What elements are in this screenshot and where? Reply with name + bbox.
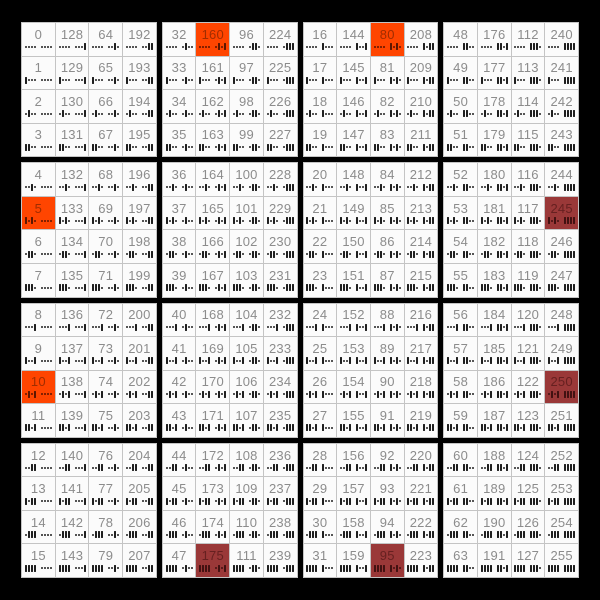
- bit-zero-mark: [172, 146, 174, 148]
- cell-value: 50: [453, 95, 468, 108]
- binary-marks: [233, 357, 260, 365]
- bit-zero-mark: [191, 287, 193, 289]
- bit-zero-mark: [111, 113, 113, 115]
- binary-marks: [199, 497, 226, 505]
- bit-zero-mark: [78, 146, 80, 148]
- bit-one-mark: [101, 424, 103, 431]
- bit-zero-mark: [50, 567, 52, 569]
- binary-marks: [514, 531, 541, 539]
- cell-value: 97: [239, 61, 254, 74]
- bit-zero-mark: [145, 186, 147, 188]
- cell-value: 98: [239, 95, 254, 108]
- grid-cell-62: 62: [444, 511, 477, 544]
- bit-zero-mark: [325, 500, 327, 502]
- bit-zero-mark: [407, 253, 409, 255]
- bit-one-mark: [34, 565, 36, 572]
- bit-zero-mark: [68, 186, 70, 188]
- bit-one-mark: [416, 357, 418, 364]
- bit-one-mark: [432, 531, 434, 538]
- bit-zero-mark: [413, 360, 415, 362]
- bit-one-mark: [239, 565, 241, 572]
- bit-zero-mark: [383, 113, 385, 115]
- binary-marks: [548, 284, 575, 292]
- bit-zero-mark: [399, 220, 401, 222]
- bit-zero-mark: [169, 360, 171, 362]
- bit-zero-mark: [393, 326, 395, 328]
- cell-value: 86: [380, 235, 395, 248]
- bit-one-mark: [520, 184, 522, 191]
- bit-one-mark: [463, 531, 465, 538]
- bit-zero-mark: [481, 467, 483, 469]
- bit-one-mark: [429, 144, 431, 151]
- bit-one-mark: [500, 324, 502, 331]
- bit-zero-mark: [331, 393, 333, 395]
- bit-one-mark: [514, 357, 516, 364]
- bit-zero-mark: [98, 146, 100, 148]
- bit-zero-mark: [205, 427, 207, 429]
- grid-cell-172: 172: [196, 444, 229, 477]
- bit-one-mark: [292, 284, 294, 291]
- grid-cell-131: 131: [56, 124, 89, 157]
- bit-zero-mark: [270, 360, 272, 362]
- binary-marks: [447, 564, 474, 572]
- bit-zero-mark: [28, 467, 30, 469]
- bit-one-mark: [286, 217, 288, 224]
- binary-marks: [59, 183, 86, 191]
- grid-cell-133: 133: [56, 197, 89, 230]
- bit-zero-mark: [215, 567, 217, 569]
- bit-one-mark: [573, 391, 575, 398]
- bit-one-mark: [429, 217, 431, 224]
- bit-one-mark: [466, 531, 468, 538]
- bit-zero-mark: [551, 79, 553, 81]
- bit-one-mark: [497, 531, 499, 538]
- bit-zero-mark: [142, 467, 144, 469]
- bit-one-mark: [396, 144, 398, 151]
- bit-one-mark: [500, 184, 502, 191]
- bit-zero-mark: [98, 393, 100, 395]
- bit-zero-mark: [487, 146, 489, 148]
- bit-zero-mark: [188, 534, 190, 536]
- bit-one-mark: [255, 43, 257, 50]
- bit-one-mark: [567, 324, 569, 331]
- bit-zero-mark: [374, 467, 376, 469]
- bit-one-mark: [536, 144, 538, 151]
- bit-zero-mark: [380, 427, 382, 429]
- bit-one-mark: [322, 43, 324, 50]
- bit-one-mark: [564, 531, 566, 538]
- bit-one-mark: [114, 498, 116, 505]
- bit-one-mark: [292, 565, 294, 572]
- bit-zero-mark: [215, 186, 217, 188]
- grid-cell-36: 36: [163, 163, 196, 196]
- bit-one-mark: [255, 184, 257, 191]
- bit-zero-mark: [472, 393, 474, 395]
- grid-cell-119: 119: [512, 264, 545, 297]
- binary-marks: [166, 464, 193, 472]
- bit-zero-mark: [188, 467, 190, 469]
- bit-one-mark: [289, 251, 291, 258]
- bit-zero-mark: [81, 360, 83, 362]
- bit-one-mark: [322, 391, 324, 398]
- bit-one-mark: [453, 251, 455, 258]
- cell-value: 106: [235, 375, 257, 388]
- bit-zero-mark: [199, 534, 201, 536]
- bit-one-mark: [396, 324, 398, 331]
- binary-marks: [25, 464, 52, 472]
- bit-one-mark: [239, 217, 241, 224]
- bit-one-mark: [224, 464, 226, 471]
- binary-marks: [407, 323, 434, 331]
- bit-zero-mark: [208, 287, 210, 289]
- grid-cell-129: 129: [56, 57, 89, 90]
- bit-one-mark: [548, 424, 550, 431]
- bit-zero-mark: [416, 79, 418, 81]
- bit-one-mark: [292, 251, 294, 258]
- bit-zero-mark: [34, 113, 36, 115]
- bit-one-mark: [236, 391, 238, 398]
- binary-marks: [126, 143, 153, 151]
- bit-one-mark: [148, 110, 150, 117]
- bit-one-mark: [497, 391, 499, 398]
- bit-zero-mark: [182, 326, 184, 328]
- bit-zero-mark: [410, 360, 412, 362]
- bit-zero-mark: [377, 326, 379, 328]
- bit-one-mark: [286, 184, 288, 191]
- bit-zero-mark: [273, 326, 275, 328]
- bit-one-mark: [346, 464, 348, 471]
- bit-zero-mark: [426, 567, 428, 569]
- bit-zero-mark: [374, 393, 376, 395]
- bit-zero-mark: [249, 146, 251, 148]
- bit-zero-mark: [108, 186, 110, 188]
- bit-zero-mark: [362, 326, 364, 328]
- bit-zero-mark: [182, 567, 184, 569]
- bit-one-mark: [453, 498, 455, 505]
- grid-block: 60 188 124 252 61 189 125 253 62 190 126…: [443, 443, 579, 578]
- grid-cell-118: 118: [512, 230, 545, 263]
- bit-one-mark: [536, 284, 538, 291]
- bit-one-mark: [233, 424, 235, 431]
- bit-one-mark: [343, 251, 345, 258]
- bit-one-mark: [59, 144, 61, 151]
- bit-one-mark: [340, 284, 342, 291]
- bit-one-mark: [416, 498, 418, 505]
- binary-marks: [306, 564, 333, 572]
- bit-zero-mark: [117, 360, 119, 362]
- bit-zero-mark: [267, 113, 269, 115]
- bit-one-mark: [456, 391, 458, 398]
- bit-zero-mark: [273, 427, 275, 429]
- bit-zero-mark: [393, 360, 395, 362]
- binary-marks: [199, 183, 226, 191]
- bit-zero-mark: [25, 534, 27, 536]
- bit-zero-mark: [117, 567, 119, 569]
- bit-one-mark: [343, 284, 345, 291]
- bit-zero-mark: [447, 186, 449, 188]
- bit-zero-mark: [426, 534, 428, 536]
- bit-one-mark: [396, 284, 398, 291]
- bit-zero-mark: [221, 287, 223, 289]
- grid-cell-46: 46: [163, 511, 196, 544]
- bit-zero-mark: [481, 393, 483, 395]
- bit-one-mark: [390, 391, 392, 398]
- cell-value: 88: [380, 308, 395, 321]
- cell-value: 142: [61, 516, 83, 529]
- bit-one-mark: [429, 77, 431, 84]
- bit-one-mark: [390, 498, 392, 505]
- bit-zero-mark: [191, 146, 193, 148]
- bit-one-mark: [413, 565, 415, 572]
- cell-value: 117: [517, 202, 538, 215]
- bit-zero-mark: [517, 500, 519, 502]
- bit-one-mark: [252, 184, 254, 191]
- cell-value: 157: [342, 482, 364, 495]
- bit-zero-mark: [98, 79, 100, 81]
- bit-zero-mark: [59, 113, 61, 115]
- bit-one-mark: [554, 464, 556, 471]
- bit-zero-mark: [169, 220, 171, 222]
- bit-zero-mark: [426, 46, 428, 48]
- bit-zero-mark: [31, 79, 33, 81]
- bit-zero-mark: [182, 467, 184, 469]
- cell-value: 77: [98, 482, 113, 495]
- bit-one-mark: [252, 391, 254, 398]
- bit-zero-mark: [456, 186, 458, 188]
- bit-one-mark: [390, 284, 392, 291]
- bit-zero-mark: [469, 253, 471, 255]
- grid-cell-217: 217: [405, 337, 438, 370]
- bit-zero-mark: [399, 500, 401, 502]
- bit-one-mark: [340, 498, 342, 505]
- bit-zero-mark: [208, 220, 210, 222]
- bit-zero-mark: [215, 467, 217, 469]
- bit-one-mark: [95, 531, 97, 538]
- cell-value: 206: [128, 516, 150, 529]
- bit-one-mark: [490, 357, 492, 364]
- bit-one-mark: [322, 357, 324, 364]
- bit-one-mark: [25, 357, 27, 364]
- bit-one-mark: [564, 43, 566, 50]
- bit-one-mark: [172, 531, 174, 538]
- bit-zero-mark: [81, 467, 83, 469]
- bit-one-mark: [315, 531, 317, 538]
- bit-one-mark: [98, 565, 100, 572]
- bit-one-mark: [423, 324, 425, 331]
- bit-one-mark: [218, 284, 220, 291]
- binary-marks: [267, 531, 294, 539]
- bit-zero-mark: [221, 186, 223, 188]
- binary-marks: [126, 217, 153, 225]
- bit-zero-mark: [175, 146, 177, 148]
- grid-cell-136: 136: [56, 304, 89, 337]
- bit-zero-mark: [41, 220, 43, 222]
- bit-zero-mark: [393, 467, 395, 469]
- bit-zero-mark: [520, 427, 522, 429]
- binary-marks: [126, 497, 153, 505]
- binary-marks: [126, 43, 153, 51]
- bit-zero-mark: [481, 113, 483, 115]
- bit-one-mark: [224, 498, 226, 505]
- bit-zero-mark: [239, 146, 241, 148]
- binary-marks: [548, 43, 575, 51]
- bit-zero-mark: [221, 534, 223, 536]
- bit-zero-mark: [50, 534, 52, 536]
- bit-one-mark: [463, 110, 465, 117]
- bit-zero-mark: [377, 500, 379, 502]
- bit-one-mark: [185, 251, 187, 258]
- grid-cell-184: 184: [478, 304, 511, 337]
- bit-one-mark: [129, 110, 131, 117]
- grid-cell-205: 205: [123, 477, 156, 510]
- bit-one-mark: [59, 565, 61, 572]
- bit-one-mark: [185, 391, 187, 398]
- grid-cell-55: 55: [444, 264, 477, 297]
- bit-one-mark: [506, 217, 508, 224]
- bit-one-mark: [365, 498, 367, 505]
- cell-value: 10: [31, 375, 46, 388]
- cell-value: 254: [551, 516, 573, 529]
- bit-one-mark: [413, 217, 415, 224]
- bit-zero-mark: [242, 113, 244, 115]
- bit-one-mark: [413, 464, 415, 471]
- bit-one-mark: [199, 284, 201, 291]
- binary-marks: [59, 531, 86, 539]
- bit-zero-mark: [472, 326, 474, 328]
- binary-marks: [166, 497, 193, 505]
- binary-marks: [306, 143, 333, 151]
- bit-one-mark: [151, 284, 153, 291]
- bit-zero-mark: [548, 113, 550, 115]
- bit-one-mark: [567, 110, 569, 117]
- bit-one-mark: [166, 77, 168, 84]
- bit-zero-mark: [393, 567, 395, 569]
- bit-zero-mark: [331, 500, 333, 502]
- bit-one-mark: [92, 424, 94, 431]
- cell-value: 222: [410, 516, 432, 529]
- cell-value: 83: [380, 128, 395, 141]
- cell-value: 25: [312, 342, 327, 355]
- bit-zero-mark: [172, 427, 174, 429]
- cell-value: 190: [483, 516, 505, 529]
- bit-zero-mark: [362, 427, 364, 429]
- bit-zero-mark: [472, 427, 474, 429]
- grid-cell-112: 112: [512, 23, 545, 56]
- bit-one-mark: [530, 217, 532, 224]
- cell-value: 244: [551, 168, 573, 181]
- cell-value: 195: [128, 128, 150, 141]
- grid-cell-201: 201: [123, 337, 156, 370]
- bit-one-mark: [199, 77, 201, 84]
- grid-cell-92: 92: [371, 444, 404, 477]
- bit-zero-mark: [539, 79, 541, 81]
- bit-one-mark: [92, 498, 94, 505]
- bit-zero-mark: [346, 46, 348, 48]
- bit-zero-mark: [98, 46, 100, 48]
- bit-one-mark: [151, 531, 153, 538]
- binary-marks: [166, 250, 193, 258]
- bit-one-mark: [224, 251, 226, 258]
- grid-cell-78: 78: [89, 511, 122, 544]
- grid-cell-158: 158: [337, 511, 370, 544]
- bit-zero-mark: [221, 427, 223, 429]
- bit-one-mark: [374, 77, 376, 84]
- bit-one-mark: [92, 565, 94, 572]
- grid-cell-77: 77: [89, 477, 122, 510]
- bit-zero-mark: [557, 113, 559, 115]
- bit-zero-mark: [258, 467, 260, 469]
- bit-zero-mark: [447, 393, 449, 395]
- bit-zero-mark: [514, 534, 516, 536]
- binary-marks: [92, 531, 119, 539]
- bit-zero-mark: [221, 326, 223, 328]
- bit-zero-mark: [450, 79, 452, 81]
- bit-zero-mark: [306, 326, 308, 328]
- bit-one-mark: [380, 284, 382, 291]
- bit-zero-mark: [517, 326, 519, 328]
- bit-zero-mark: [117, 326, 119, 328]
- bit-zero-mark: [221, 113, 223, 115]
- bit-zero-mark: [182, 427, 184, 429]
- bit-zero-mark: [221, 253, 223, 255]
- bit-zero-mark: [75, 287, 77, 289]
- bit-zero-mark: [47, 567, 49, 569]
- bit-one-mark: [453, 217, 455, 224]
- grid-cell-90: 90: [371, 371, 404, 404]
- bit-one-mark: [65, 498, 67, 505]
- bit-zero-mark: [145, 393, 147, 395]
- bit-zero-mark: [44, 79, 46, 81]
- bit-zero-mark: [270, 467, 272, 469]
- bit-one-mark: [185, 217, 187, 224]
- bit-one-mark: [129, 391, 131, 398]
- cell-value: 73: [98, 342, 113, 355]
- bit-one-mark: [218, 77, 220, 84]
- binary-marks: [407, 464, 434, 472]
- bit-zero-mark: [416, 253, 418, 255]
- bit-one-mark: [132, 184, 134, 191]
- cell-value: 204: [128, 449, 150, 462]
- cell-value: 114: [517, 95, 538, 108]
- bit-one-mark: [59, 357, 61, 364]
- bit-zero-mark: [487, 79, 489, 81]
- bit-one-mark: [286, 357, 288, 364]
- cell-value: 15: [31, 549, 46, 562]
- grid-cell-247: 247: [545, 264, 578, 297]
- binary-marks: [548, 424, 575, 432]
- grid-cell-124: 124: [512, 444, 545, 477]
- bit-zero-mark: [484, 326, 486, 328]
- grid-cell-71: 71: [89, 264, 122, 297]
- bit-zero-mark: [44, 534, 46, 536]
- bit-one-mark: [252, 324, 254, 331]
- bit-zero-mark: [399, 326, 401, 328]
- bit-one-mark: [517, 565, 519, 572]
- bit-one-mark: [84, 531, 86, 538]
- bit-one-mark: [28, 565, 30, 572]
- bit-one-mark: [396, 565, 398, 572]
- bit-zero-mark: [95, 467, 97, 469]
- bit-one-mark: [312, 565, 314, 572]
- grid-cell-127: 127: [512, 544, 545, 577]
- bit-one-mark: [233, 144, 235, 151]
- bit-one-mark: [242, 531, 244, 538]
- cell-value: 221: [410, 482, 432, 495]
- bit-zero-mark: [108, 467, 110, 469]
- bit-one-mark: [570, 464, 572, 471]
- bit-one-mark: [390, 184, 392, 191]
- bit-one-mark: [309, 110, 311, 117]
